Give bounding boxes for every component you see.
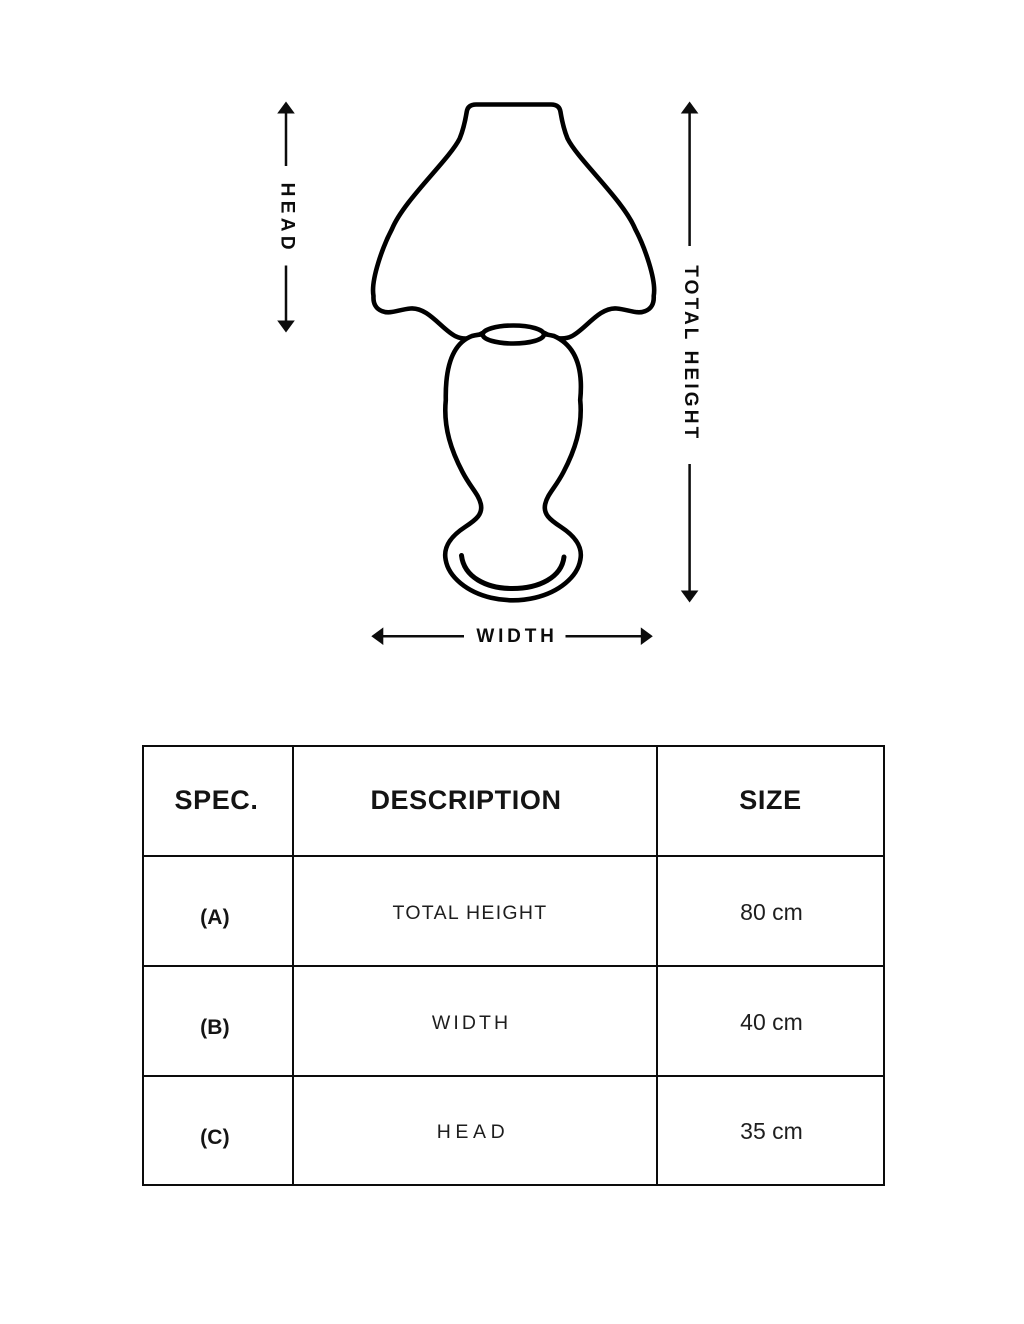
svg-text:TOTAL HEIGHT: TOTAL HEIGHT: [680, 265, 701, 441]
svg-text:WIDTH: WIDTH: [476, 626, 557, 647]
svg-text:HEAD: HEAD: [276, 183, 297, 254]
